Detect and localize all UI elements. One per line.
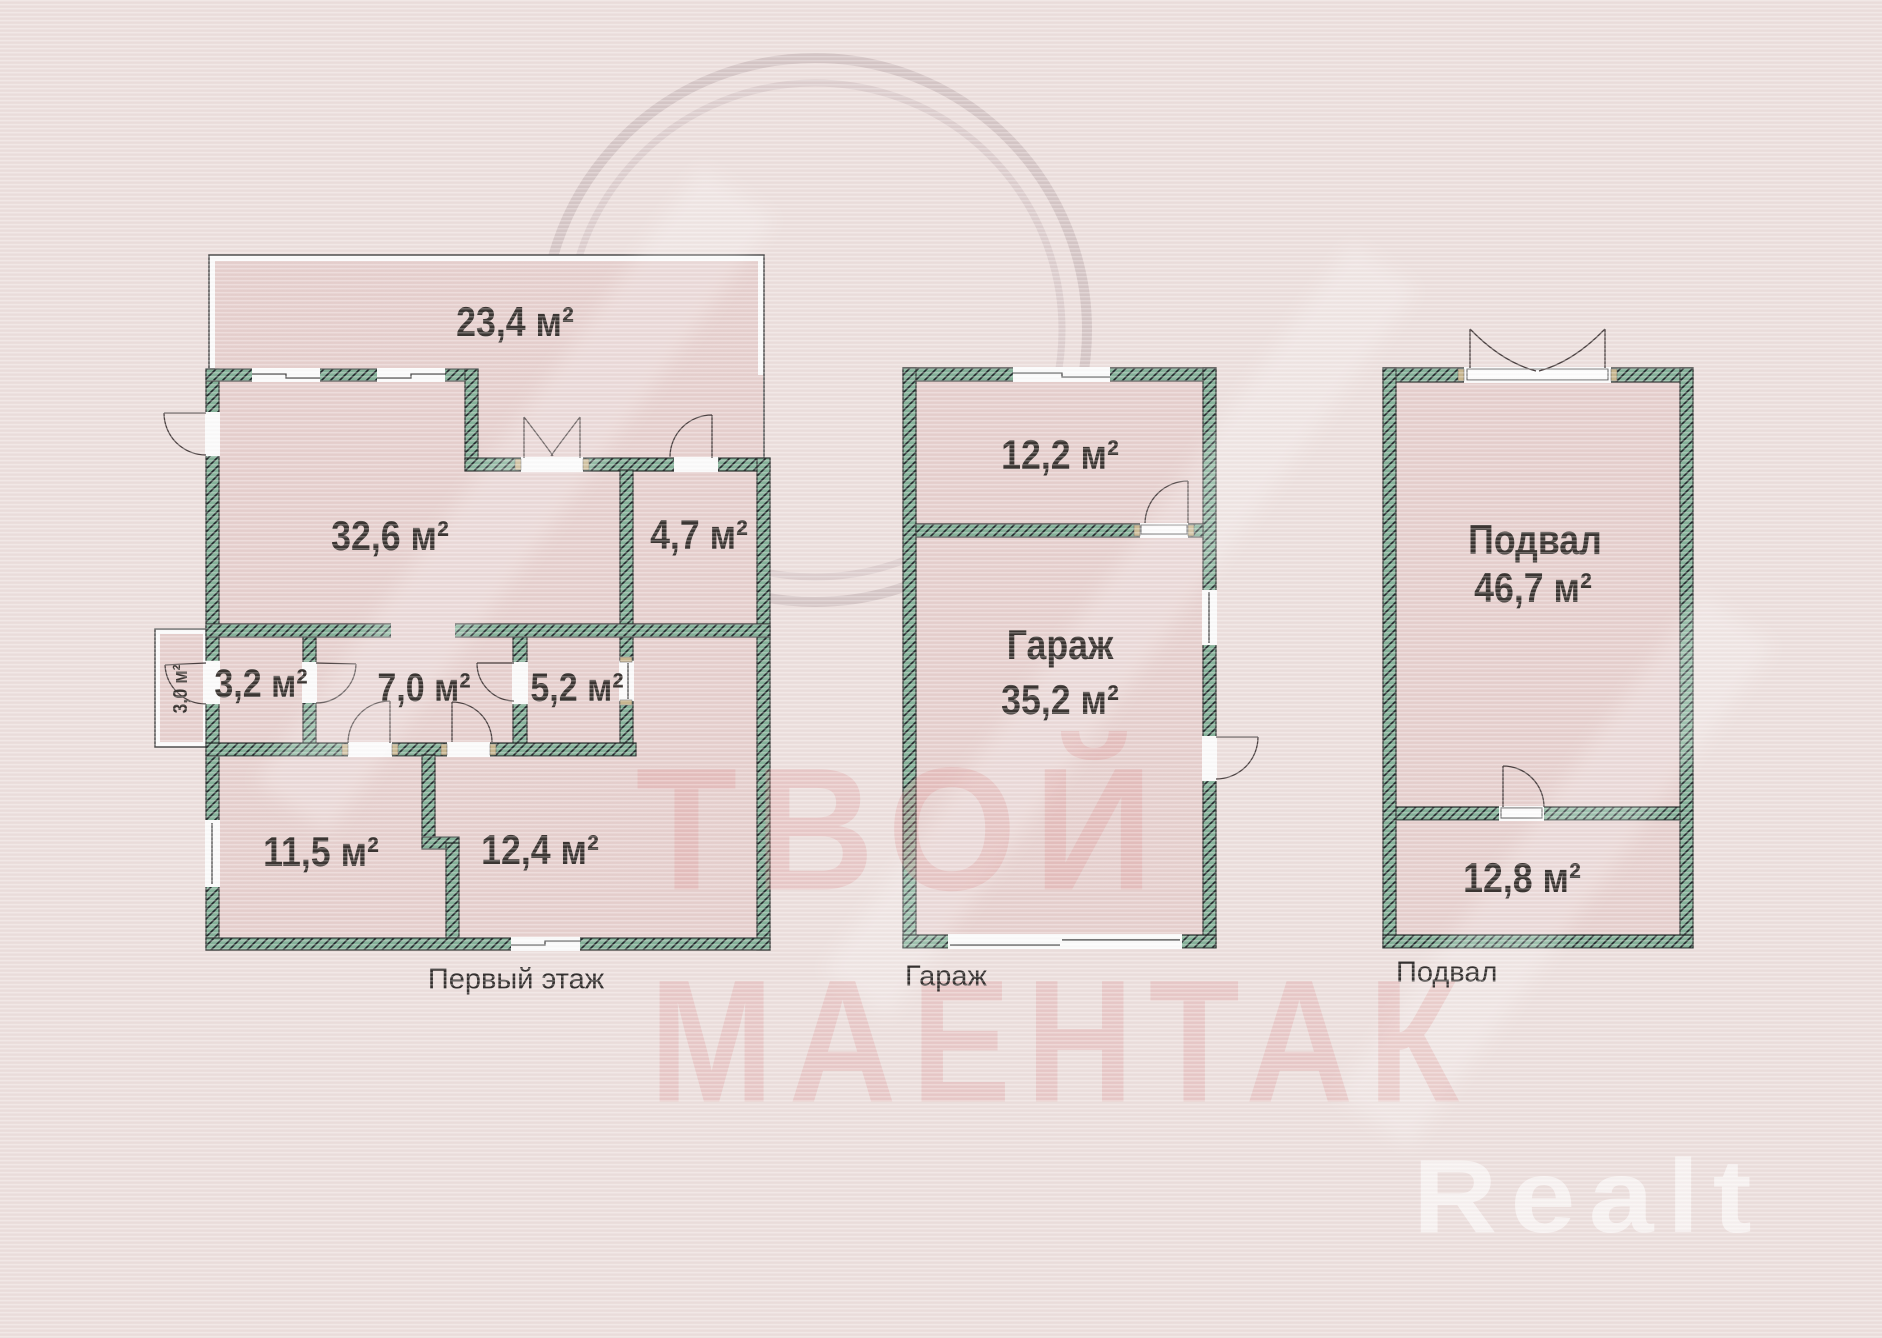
garage-gate — [948, 934, 1182, 949]
room-name-label-garage: Гараж — [1007, 624, 1114, 666]
window — [511, 937, 580, 951]
entrance-door — [164, 412, 220, 456]
room-area-label-porch: 3,0 м² — [171, 664, 191, 713]
caption-garage: Гараж — [905, 963, 987, 992]
room-area-label-12-4: 12,4 м² — [481, 829, 599, 871]
room-name-label-basement: Подвал — [1468, 519, 1602, 561]
floorplan-page: ТВОЙ МАЕНТАК 23,4 м² 32,6 м² 4,7 м² 3,2 … — [0, 0, 1882, 1338]
window — [1013, 367, 1110, 382]
room-area-label-garage: 35,2 м² — [1001, 679, 1119, 721]
room-area-label-11-5: 11,5 м² — [263, 831, 379, 873]
window — [252, 368, 320, 382]
caption-basement: Подвал — [1396, 959, 1497, 988]
window — [377, 368, 445, 382]
room-area-label-4-7: 4,7 м² — [650, 514, 748, 556]
room-area-label-terrace: 23,4 м² — [456, 301, 574, 343]
caption-first-floor: Первый этаж — [428, 966, 604, 995]
room-area-label-7-0: 7,0 м² — [377, 668, 470, 708]
window — [205, 820, 220, 887]
room-area-label-5-2: 5,2 м² — [530, 668, 623, 708]
open-passage — [391, 623, 455, 638]
window — [1202, 590, 1217, 645]
first-floor-plan — [155, 255, 770, 951]
double-entrance-door — [1458, 329, 1617, 383]
realt-logo: Realt — [1413, 1145, 1765, 1249]
room-area-label-basement: 46,7 м² — [1474, 567, 1592, 609]
room-area-label-living: 32,6 м² — [331, 515, 449, 557]
room-area-label-12-8: 12,8 м² — [1463, 857, 1581, 899]
room-area-label-3-2: 3,2 м² — [214, 664, 307, 704]
room-area-label-12-2: 12,2 м² — [1001, 434, 1119, 476]
side-door — [1202, 736, 1258, 781]
